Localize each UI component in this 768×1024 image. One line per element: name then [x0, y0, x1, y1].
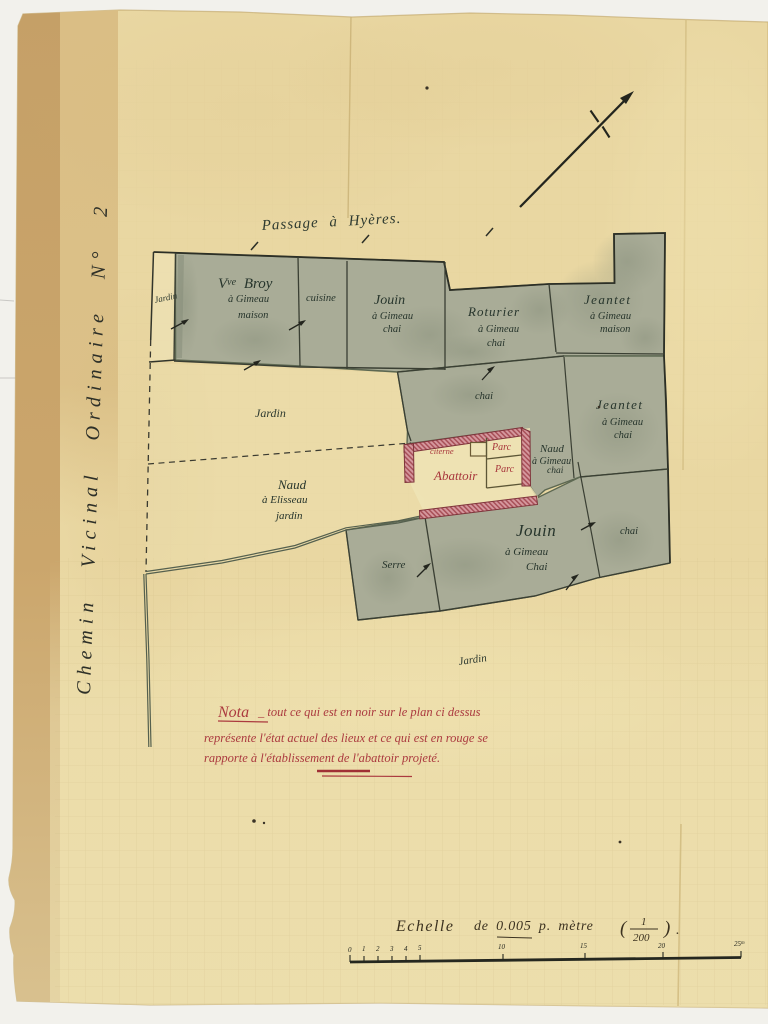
svg-text:à Gimeau: à Gimeau: [590, 311, 631, 322]
svg-text:à Gimeau: à Gimeau: [602, 417, 643, 428]
svg-text:chai: chai: [620, 526, 638, 537]
svg-text:1: 1: [641, 916, 647, 928]
svg-text:3: 3: [389, 945, 394, 953]
svg-text:): ): [663, 918, 670, 939]
svg-text:Roturier: Roturier: [467, 304, 520, 319]
svg-text:Nota: Nota: [217, 704, 249, 721]
svg-text:20: 20: [658, 942, 666, 950]
svg-text:chai: chai: [383, 324, 401, 335]
svg-text:0: 0: [348, 946, 352, 954]
svg-text:représente l'état actuel des l: représente l'état actuel des lieux et ce…: [204, 731, 488, 745]
svg-text:citerne: citerne: [430, 446, 454, 456]
svg-text:Abattoir: Abattoir: [433, 468, 478, 483]
svg-text:Jardin: Jardin: [255, 406, 286, 420]
svg-text:de 0.005 p. mètre: de 0.005 p. mètre: [474, 919, 594, 934]
svg-text:Naud: Naud: [277, 477, 307, 492]
svg-text:cuisine: cuisine: [306, 293, 336, 304]
svg-text:à Gimeau: à Gimeau: [228, 294, 269, 305]
svg-text:à Gimeau: à Gimeau: [372, 311, 413, 322]
svg-text:à Elisseau: à Elisseau: [262, 494, 308, 506]
svg-text:5: 5: [418, 944, 422, 952]
svg-text:15: 15: [580, 942, 588, 950]
svg-text:maison: maison: [238, 310, 268, 321]
svg-text:4: 4: [404, 945, 408, 953]
svg-text:maison: maison: [600, 324, 630, 335]
svg-text:10: 10: [498, 943, 506, 951]
svg-text:.: .: [676, 923, 680, 938]
svg-text:Jeantet: Jeantet: [596, 397, 643, 412]
svg-text:à Gimeau: à Gimeau: [478, 324, 519, 335]
svg-text:Parc: Parc: [494, 464, 515, 475]
svg-text:1: 1: [362, 945, 366, 953]
svg-text:Serre: Serre: [382, 559, 406, 571]
svg-text:à Gimeau: à Gimeau: [505, 546, 549, 558]
svg-text:Jeantet: Jeantet: [584, 292, 631, 307]
svg-text:chai: chai: [614, 430, 632, 441]
svg-text:chai: chai: [487, 338, 505, 349]
svg-text:jardin: jardin: [274, 510, 303, 522]
svg-text:2: 2: [376, 945, 380, 953]
svg-text:rapporte à l'établissement de: rapporte à l'établissement de l'abattoir…: [204, 751, 440, 765]
svg-text:Jouin: Jouin: [374, 293, 405, 308]
svg-text:_ tout ce qui est en noir sur: _ tout ce qui est en noir sur le plan ci…: [257, 705, 481, 719]
svg-text:chai: chai: [547, 466, 564, 476]
svg-text:chai: chai: [475, 391, 493, 402]
svg-text:Vve Broy: Vve Broy: [218, 276, 273, 292]
svg-text:Parc: Parc: [491, 442, 512, 453]
svg-text:Echelle: Echelle: [395, 918, 454, 935]
svg-text:200: 200: [633, 932, 650, 944]
svg-text:Naud: Naud: [539, 443, 564, 455]
svg-text:Chai: Chai: [526, 561, 547, 573]
svg-text:Jouin: Jouin: [516, 521, 556, 540]
